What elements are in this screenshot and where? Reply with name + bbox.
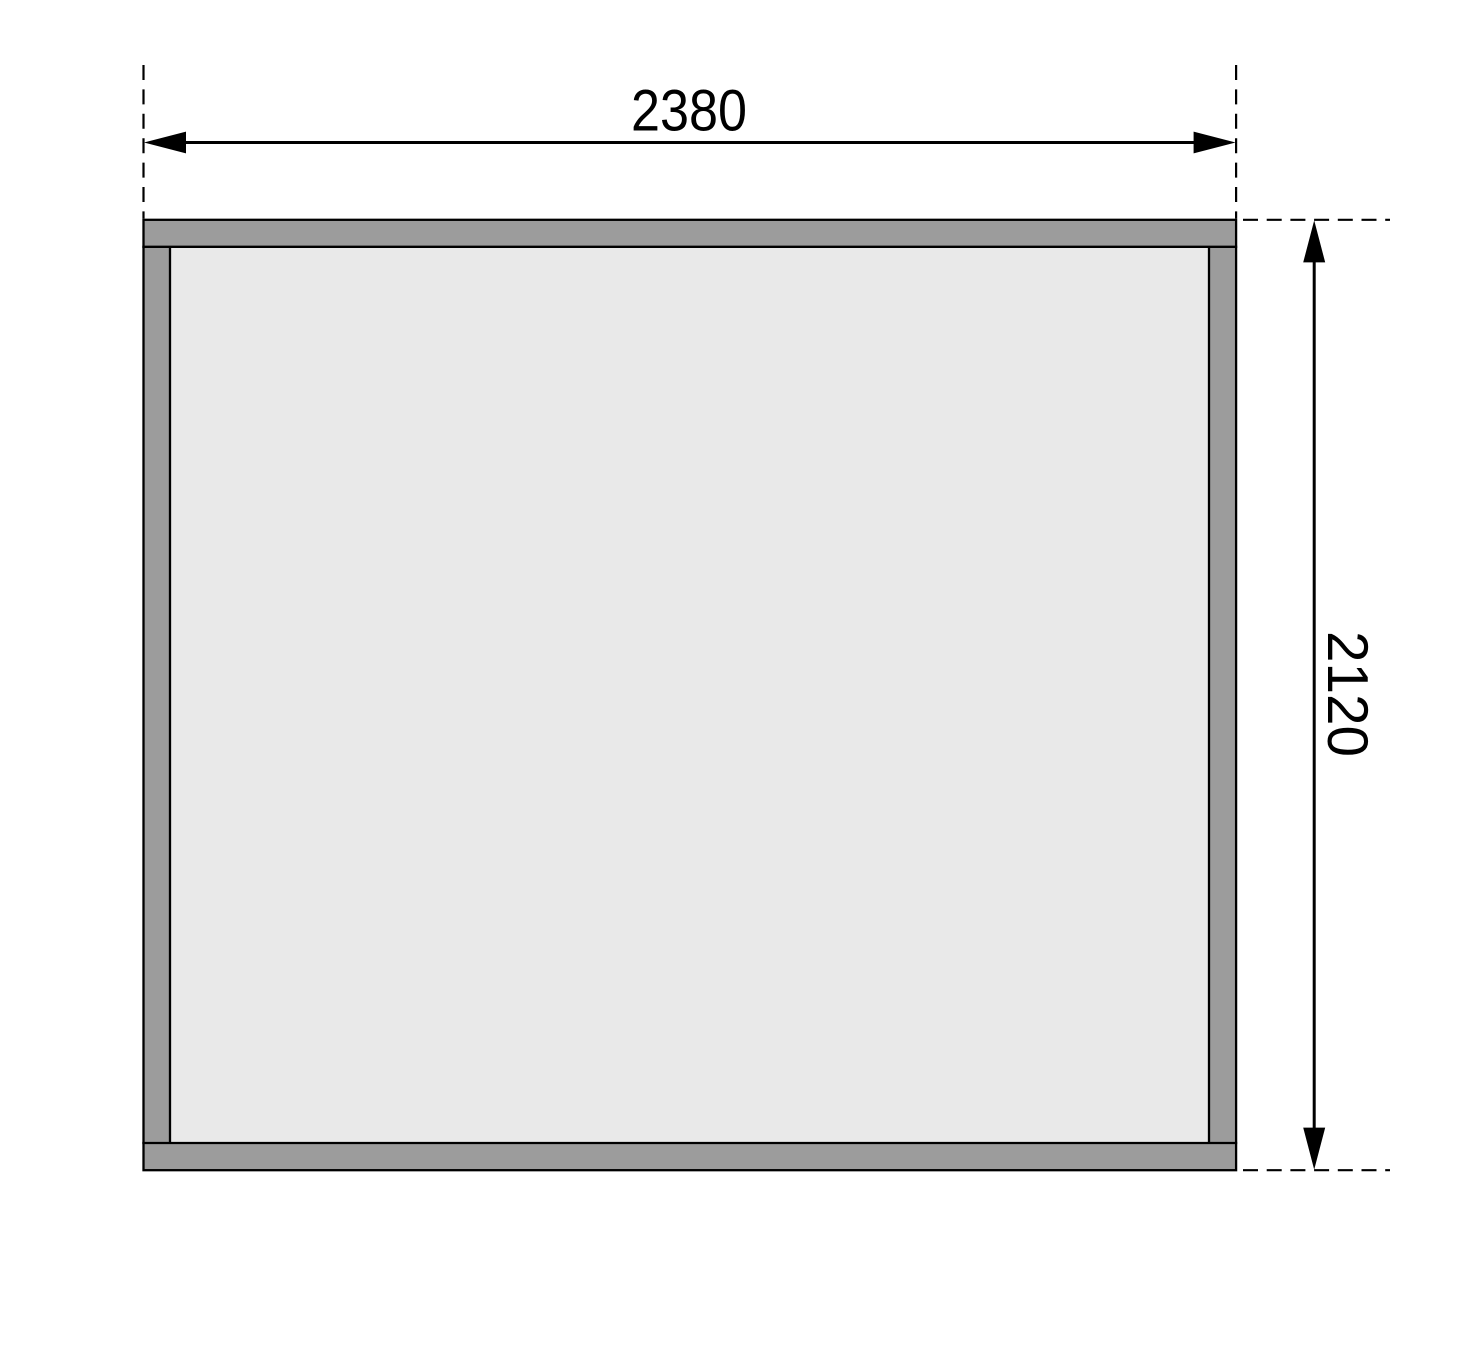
svg-text:2120: 2120: [1315, 631, 1379, 757]
svg-text:2380: 2380: [631, 78, 747, 143]
